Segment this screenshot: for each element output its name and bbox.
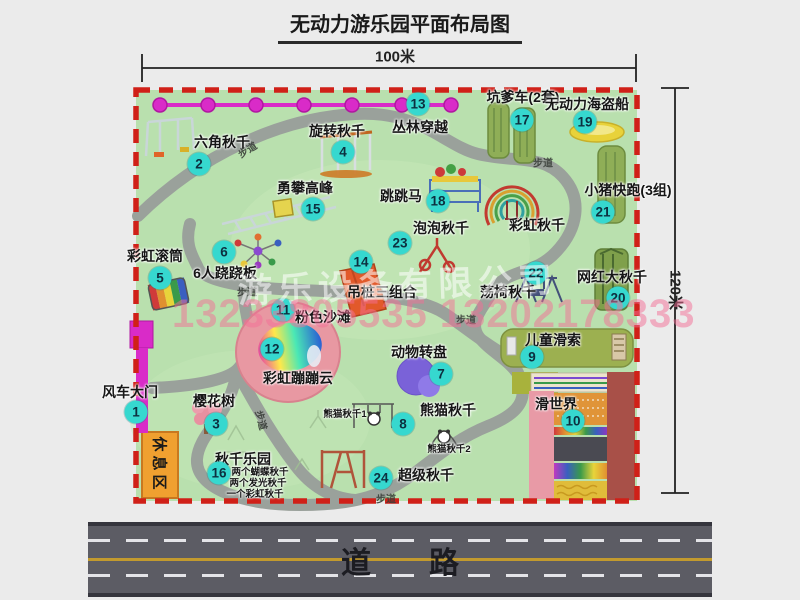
feature-badge-7: 7 xyxy=(430,363,453,386)
sub-label-2: 熊猫秋千2 xyxy=(427,441,470,455)
feature-badge-6: 6 xyxy=(213,241,236,264)
walkway-label-1: 步道 xyxy=(533,155,553,170)
feature-badge-12: 12 xyxy=(261,338,284,361)
feature-badge-21: 21 xyxy=(592,201,615,224)
feature-badge-4: 4 xyxy=(332,141,355,164)
feature-label-5: 彩虹滚筒 xyxy=(127,246,183,266)
feature-label-3: 樱花树 xyxy=(193,391,235,411)
sub-label-5: 一个彩虹秋千 xyxy=(226,486,283,500)
feature-label-23: 泡泡秋千 xyxy=(413,218,469,238)
feature-badge-3: 3 xyxy=(205,413,228,436)
feature-badge-23: 23 xyxy=(389,232,412,255)
feature-label-4: 旋转秋千 xyxy=(309,121,365,141)
feature-badge-9: 9 xyxy=(521,346,544,369)
feature-label-7: 动物转盘 xyxy=(391,342,447,362)
rest-area-label: 休息区 xyxy=(150,436,171,493)
feature-badge-17: 17 xyxy=(511,109,534,132)
feature-badge-13: 13 xyxy=(407,93,430,116)
feature-badge-24: 24 xyxy=(370,467,393,490)
feature-label-13: 丛林穿越 xyxy=(392,117,448,137)
sub-label-1: 熊猫秋千1 xyxy=(323,406,366,420)
feature-badge-19: 19 xyxy=(574,111,597,134)
feature-label-15: 勇攀高峰 xyxy=(277,178,333,198)
feature-badge-5: 5 xyxy=(149,267,172,290)
feature-label-20: 网红大秋千 xyxy=(577,267,647,287)
page-title: 无动力游乐园平面布局图 xyxy=(278,8,522,44)
feature-badge-18: 18 xyxy=(427,190,450,213)
phone-watermark: 13233805535 13202178333 xyxy=(172,292,696,337)
feature-label-24: 超级秋千 xyxy=(398,465,454,485)
feature-label-1: 风车大门 xyxy=(102,382,158,402)
road: 道路 xyxy=(88,522,712,597)
feature-badge-10: 10 xyxy=(562,410,585,433)
feature-badge-8: 8 xyxy=(392,413,415,436)
road-label: 道路 xyxy=(283,538,517,582)
feature-badge-16: 16 xyxy=(208,462,231,485)
width-dimension-label: 100米 xyxy=(375,46,415,67)
feature-badge-2: 2 xyxy=(188,153,211,176)
feature-badge-1: 1 xyxy=(125,401,148,424)
feature-label-12: 彩虹蹦蹦云 xyxy=(263,368,333,388)
feature-badge-15: 15 xyxy=(302,198,325,221)
sub-label-0: 彩虹秋千 xyxy=(509,215,565,235)
feature-label-18: 跳跳马 xyxy=(380,186,422,206)
walkway-label-4: 步道 xyxy=(376,491,396,506)
feature-label-8: 熊猫秋千 xyxy=(420,400,476,420)
feature-label-21: 小猪快跑(3组) xyxy=(584,180,671,200)
park-layout-map: 无动力游乐园平面布局图 100米 120米 xyxy=(0,0,800,600)
